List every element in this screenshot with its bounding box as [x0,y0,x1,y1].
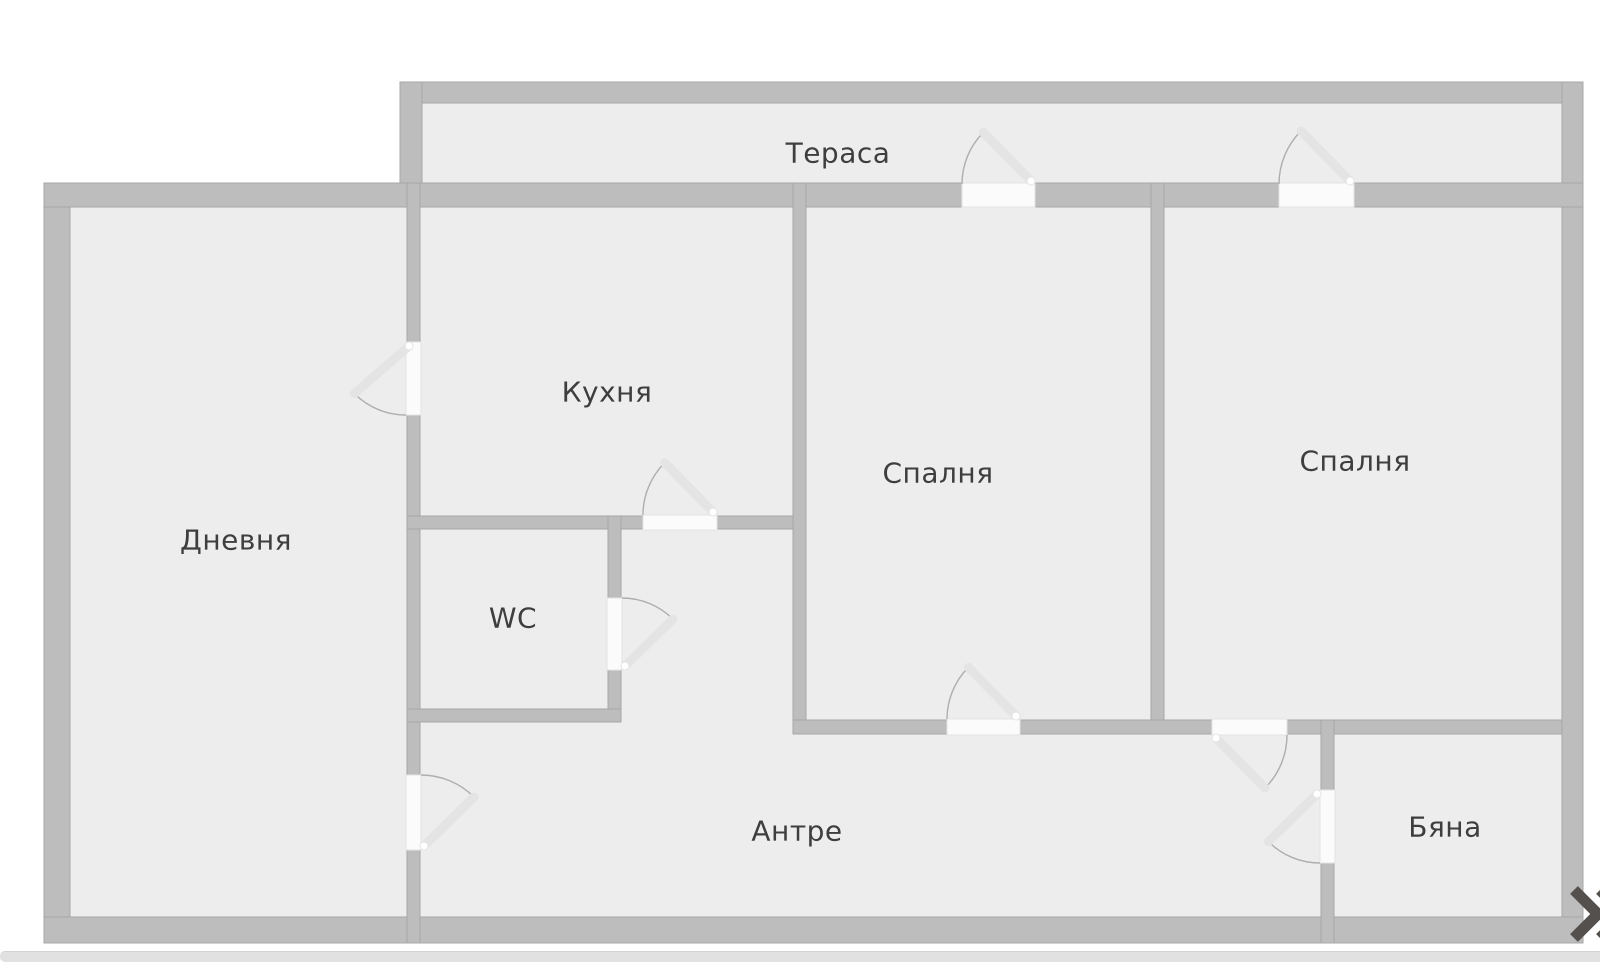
wall-outer-left [44,183,70,943]
room-label-bath: Бяна [1408,811,1482,844]
apartment-interior [70,207,1562,917]
door-hinge-dot [421,843,428,850]
wall-terrace-left [400,82,422,183]
door-gap-living-kitchen [406,342,421,415]
door-gap-bedroom2 [1212,719,1287,735]
door-hinge-dot [1028,178,1035,185]
door-hinge-dot [1013,713,1020,720]
double-chevron-right-icon [1568,886,1600,944]
wall-terrace-top [400,82,1583,103]
door-hinge-dot [1314,791,1321,798]
door-gap-bedroom1 [947,719,1020,735]
horizontal-scrollbar[interactable] [0,951,1600,962]
door-gap-bath [1320,790,1335,863]
door-gap-terrace-1 [962,183,1035,207]
room-label-living: Дневня [180,524,292,557]
door-hinge-dot [1213,735,1220,742]
door-hinge-dot [406,343,413,350]
room-label-kitchen: Кухня [562,376,653,409]
room-fills [70,103,1562,917]
door-gap-living-hall [406,775,421,850]
door-hinge-dot [710,509,717,516]
wall-bedrooms-divider [1151,183,1164,734]
wall-kitchen-bottom [407,516,806,529]
wall-bedrooms-bottom [793,720,1562,734]
room-label-terrace: Тераса [786,137,891,170]
wall-outer-right [1562,82,1583,943]
door-gap-kitchen [643,515,717,530]
room-label-hallway: Антре [751,815,842,848]
room-label-bedroom-2: Спалня [1299,445,1410,478]
door-hinge-dot [1347,178,1354,185]
door-gap-wc [607,598,622,670]
wall-wc-bottom [407,709,621,722]
door-hinge-dot [622,663,629,670]
wall-outer-bottom [44,917,1583,943]
room-label-wc: WC [489,602,537,635]
wall-bedroom1-left [793,183,806,734]
next-image-button[interactable] [1568,886,1600,944]
floor-plan-viewer: Тераса Дневня Кухня WC Спалня Спалня Ант… [0,0,1600,962]
room-label-bedroom-1: Спалня [882,457,993,490]
door-gap-terrace-2 [1279,183,1354,207]
